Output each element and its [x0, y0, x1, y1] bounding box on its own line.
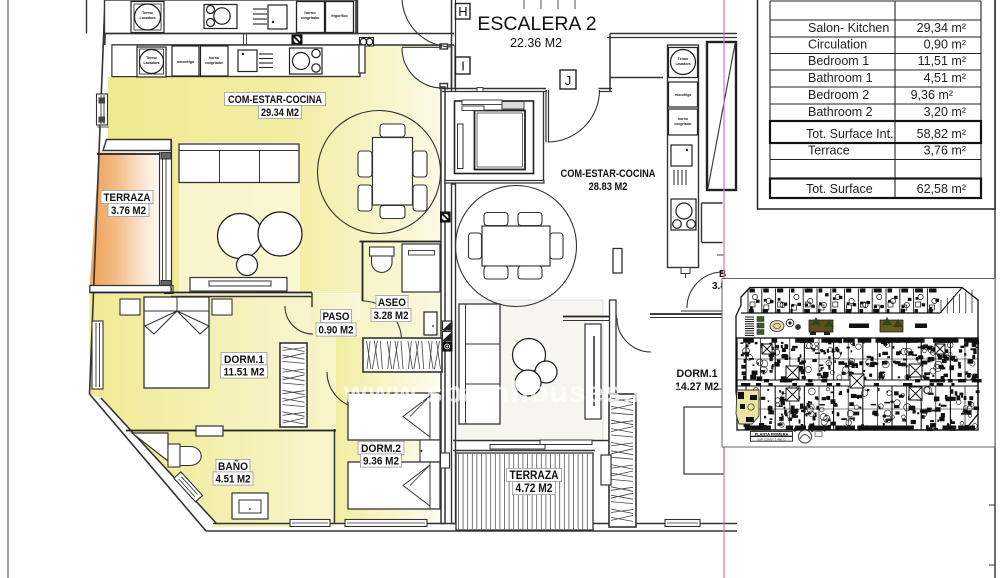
svg-text:COM-ESTAR-COCINA: COM-ESTAR-COCINA [561, 168, 656, 180]
svg-text:29,34 m²: 29,34 m² [917, 21, 966, 35]
svg-text:Termo: Termo [146, 56, 158, 60]
svg-text:TERRAZA: TERRAZA [104, 192, 151, 204]
svg-text:Tot. Surface Int.: Tot. Surface Int. [806, 127, 894, 141]
svg-text:Bathroom 2: Bathroom 2 [808, 105, 873, 119]
svg-text:22.36 M2: 22.36 M2 [510, 36, 562, 50]
svg-text:58,82 m²: 58,82 m² [917, 127, 966, 141]
svg-text:Lavadora: Lavadora [140, 16, 157, 20]
svg-text:Lavadora: Lavadora [675, 62, 690, 66]
svg-text:DORM.2: DORM.2 [361, 443, 401, 455]
svg-text:Tot. Surface: Tot. Surface [806, 182, 873, 196]
svg-text:TERRAZA: TERRAZA [510, 470, 559, 482]
svg-text:Termo: Termo [678, 57, 690, 61]
svg-text:Bedroom 1: Bedroom 1 [808, 54, 869, 68]
svg-text:0,90 m²: 0,90 m² [924, 38, 966, 52]
svg-text:congelador: congelador [674, 122, 692, 126]
svg-text:www.spainhouses.net: www.spainhouses.net [343, 376, 681, 409]
svg-text:3.28 M2: 3.28 M2 [374, 310, 409, 322]
svg-text:3.76 M2: 3.76 M2 [111, 205, 146, 217]
svg-text:14.27 M2: 14.27 M2 [675, 381, 719, 393]
svg-text:4,51 m²: 4,51 m² [924, 71, 966, 85]
svg-text:11.51 M2: 11.51 M2 [224, 366, 265, 378]
svg-text:H: H [458, 4, 467, 19]
svg-text:Terrace: Terrace [808, 144, 850, 158]
svg-text:62,58 m²: 62,58 m² [917, 182, 966, 196]
svg-text:BAÑO: BAÑO [218, 460, 248, 473]
svg-text:microfrigo: microfrigo [675, 93, 692, 97]
svg-text:Bedroom 2: Bedroom 2 [808, 88, 869, 102]
svg-text:horno: horno [209, 56, 220, 60]
svg-text:11,51 m²: 11,51 m² [918, 54, 966, 68]
svg-text:Termo: Termo [142, 11, 154, 15]
svg-text:congelador: congelador [205, 61, 223, 65]
svg-text:4.51 M2: 4.51 M2 [216, 473, 251, 485]
svg-text:I: I [461, 59, 465, 74]
svg-text:4.72 M2: 4.72 M2 [516, 483, 553, 495]
svg-text:horno: horno [304, 10, 316, 15]
svg-text:0.90 M2: 0.90 M2 [319, 324, 354, 336]
svg-text:COM-ESTAR-COCINA: COM-ESTAR-COCINA [228, 94, 322, 106]
svg-text:9.36 M2: 9.36 M2 [363, 455, 399, 467]
svg-text:DORM.1: DORM.1 [224, 354, 264, 366]
svg-text:Circulation: Circulation [808, 38, 867, 52]
svg-text:J: J [565, 73, 572, 88]
svg-text:28.83 M2: 28.83 M2 [589, 181, 628, 193]
svg-text:3,20 m²: 3,20 m² [924, 105, 966, 119]
svg-text:frigorifico: frigorifico [331, 14, 347, 18]
svg-text:horno: horno [678, 117, 688, 121]
svg-text:microfrigo: microfrigo [177, 60, 194, 64]
svg-text:congelador: congelador [301, 16, 321, 20]
svg-text:9,36 m²: 9,36 m² [911, 88, 953, 102]
svg-text:29.34 M2: 29.34 M2 [261, 107, 299, 119]
svg-text:ESCALERA 2: ESCALERA 2 [477, 13, 596, 35]
svg-text:Salon- Kitchen: Salon- Kitchen [808, 21, 889, 35]
svg-text:Bathroom 1: Bathroom 1 [808, 71, 873, 85]
svg-text:ASEO: ASEO [378, 297, 406, 309]
svg-text:SUP. CONST. 1.480,72: SUP. CONST. 1.480,72 [757, 437, 786, 441]
svg-text:3,76 m²: 3,76 m² [924, 144, 966, 158]
svg-text:Lavadora: Lavadora [144, 61, 161, 65]
svg-text:DORM.1: DORM.1 [677, 368, 718, 380]
svg-text:PLANTA PRIMERA: PLANTA PRIMERA [755, 432, 789, 436]
svg-text:PASO: PASO [323, 311, 350, 323]
